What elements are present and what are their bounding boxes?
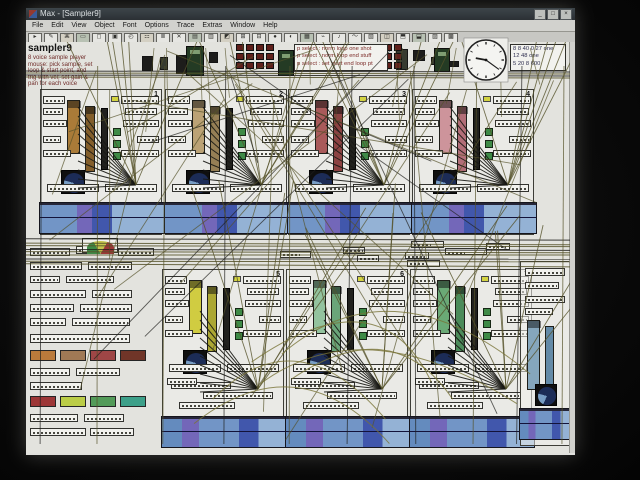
menu-object[interactable]: Object <box>94 20 114 31</box>
number-box[interactable] <box>525 282 559 289</box>
comment-line: 8 voice sample player <box>28 55 138 62</box>
number-box[interactable] <box>43 108 63 115</box>
preset-color-box[interactable] <box>60 350 86 361</box>
status-led <box>233 276 241 282</box>
toggle[interactable] <box>113 128 121 136</box>
slider-cap <box>458 107 468 114</box>
status-led <box>483 96 491 102</box>
pitch-slider[interactable] <box>457 106 467 172</box>
toggle[interactable] <box>485 128 493 136</box>
number-box[interactable] <box>203 392 273 399</box>
preset-color-box[interactable] <box>30 396 56 407</box>
number-box[interactable] <box>250 108 282 115</box>
number-box[interactable] <box>371 288 403 295</box>
pitch-slider[interactable] <box>333 106 343 172</box>
gain-slider[interactable] <box>67 100 80 154</box>
number-box[interactable] <box>289 330 317 337</box>
waveform-top-edge <box>288 203 412 205</box>
number-box[interactable] <box>369 96 407 104</box>
comment-line: loop & start point, and <box>28 68 138 75</box>
range-slider[interactable] <box>473 108 480 170</box>
toggle[interactable] <box>113 152 121 160</box>
number-box[interactable] <box>43 150 71 157</box>
object-box[interactable] <box>30 318 66 326</box>
number-box[interactable] <box>289 316 307 323</box>
number-box[interactable] <box>289 300 313 307</box>
object-box[interactable] <box>280 251 310 258</box>
number-box[interactable] <box>383 316 405 323</box>
slider-cap <box>208 287 218 294</box>
waveform-top-edge <box>165 203 289 205</box>
number-box[interactable] <box>47 184 99 192</box>
slider-cap <box>211 107 221 114</box>
slider-cap <box>456 287 466 294</box>
message-line[interactable]: 8 8 40 0 27 one <box>513 46 563 53</box>
header-object[interactable] <box>142 56 153 70</box>
object-box[interactable] <box>92 290 132 298</box>
voice-module: 4 <box>412 89 534 235</box>
number-box[interactable] <box>415 96 437 104</box>
window-titlebar[interactable]: Max - [Sampler9] _ □ × <box>26 8 575 20</box>
number-box[interactable] <box>525 308 553 315</box>
number-box[interactable] <box>230 184 282 192</box>
number-box[interactable] <box>295 184 347 192</box>
object-box[interactable] <box>30 368 70 376</box>
toggle[interactable] <box>485 140 493 148</box>
gain-slider[interactable] <box>437 280 450 334</box>
level-meter <box>82 238 118 253</box>
voice-module: 3 <box>288 89 410 235</box>
preset-button[interactable] <box>394 44 402 51</box>
status-led <box>357 276 365 282</box>
object-box[interactable] <box>30 382 82 390</box>
message-line[interactable]: p select : norm loop one shot <box>297 46 385 53</box>
slider-cap <box>316 101 329 108</box>
number-box[interactable] <box>105 184 157 192</box>
number-box[interactable] <box>415 150 443 157</box>
preset-button[interactable] <box>246 53 254 60</box>
voice-module: 7 <box>410 269 532 446</box>
voice-module <box>520 261 570 446</box>
number-box[interactable] <box>165 316 183 323</box>
range-slider[interactable] <box>347 288 354 350</box>
number-box[interactable] <box>43 120 67 127</box>
preset-button[interactable] <box>236 44 244 51</box>
message-line[interactable]: 12 48 one <box>513 53 563 60</box>
toggle[interactable] <box>361 128 369 136</box>
gain-slider[interactable] <box>313 280 326 334</box>
bpatcher-object[interactable] <box>434 48 450 72</box>
number-box[interactable] <box>262 136 284 143</box>
slider-cap <box>332 287 342 294</box>
number-box[interactable] <box>415 136 433 143</box>
range-slider[interactable] <box>471 288 478 350</box>
object-box[interactable] <box>88 262 132 270</box>
gain-slider[interactable] <box>192 100 205 154</box>
slider-cap <box>190 281 203 288</box>
toggle[interactable] <box>235 308 243 316</box>
number-box[interactable] <box>419 184 471 192</box>
number-box[interactable] <box>413 288 433 295</box>
waveform-top-edge <box>162 417 286 419</box>
indicator <box>282 54 290 58</box>
pitch-slider[interactable] <box>210 106 220 172</box>
preset-button[interactable] <box>266 53 274 60</box>
object-box[interactable] <box>30 248 70 256</box>
number-box[interactable] <box>168 96 190 104</box>
comment-line: mouse: pick sample, set <box>28 62 138 69</box>
number-box[interactable] <box>247 288 279 295</box>
number-box[interactable] <box>43 136 61 143</box>
slider-cap <box>86 107 96 114</box>
waveform-centerline <box>40 217 164 218</box>
object-box[interactable] <box>486 243 510 250</box>
toggle[interactable] <box>483 332 491 340</box>
number-box[interactable] <box>525 268 565 276</box>
number-box[interactable] <box>291 108 311 115</box>
slider-cap <box>528 321 541 328</box>
number-box[interactable] <box>125 108 157 115</box>
gain-slider[interactable] <box>527 320 540 390</box>
status-led <box>236 96 244 102</box>
number-box[interactable] <box>385 136 407 143</box>
header-object[interactable] <box>413 50 425 61</box>
header-object[interactable] <box>449 61 459 66</box>
number-box[interactable] <box>246 96 284 104</box>
patch-title: sampler9 <box>28 43 98 54</box>
pitch-slider[interactable] <box>455 286 465 352</box>
menu-file[interactable]: File <box>32 20 43 31</box>
number-box[interactable] <box>168 108 188 115</box>
preset-button[interactable] <box>256 44 264 51</box>
message-box-group[interactable]: 8 8 40 0 27 one12 48 one5 20 8 600 <box>510 44 566 71</box>
number-box[interactable] <box>165 330 193 337</box>
toggle[interactable] <box>485 152 493 160</box>
object-box[interactable] <box>80 304 132 312</box>
waveform-centerline <box>165 217 289 218</box>
waveform-display[interactable] <box>161 416 287 448</box>
waveform-centerline <box>410 431 534 432</box>
range-slider[interactable] <box>226 108 233 170</box>
menu-extras[interactable]: Extras <box>202 20 222 31</box>
number-box[interactable] <box>168 120 192 127</box>
slider-cap <box>440 101 453 108</box>
menu-font[interactable]: Font <box>123 20 137 31</box>
number-box[interactable] <box>415 378 445 385</box>
number-box[interactable] <box>248 120 284 127</box>
max-window: Max - [Sampler9] _ □ × FileEditViewObjec… <box>26 8 575 455</box>
waveform-top-edge <box>412 203 536 205</box>
menu-view[interactable]: View <box>71 20 86 31</box>
number-box[interactable] <box>293 364 345 372</box>
number-box[interactable] <box>373 108 405 115</box>
toggle[interactable] <box>359 308 367 316</box>
object-box[interactable] <box>343 247 364 254</box>
waveform-top-edge <box>40 203 164 205</box>
number-box[interactable] <box>291 136 309 143</box>
number-box[interactable] <box>351 364 403 372</box>
message-box-group[interactable]: p select : norm loop one shotp select : … <box>294 44 388 71</box>
slider-cap <box>334 107 344 114</box>
vertical-scrollbar[interactable] <box>569 42 575 453</box>
number-box[interactable] <box>243 330 281 337</box>
window-title: Max - [Sampler9] <box>40 8 101 20</box>
patch-comment: 8 voice sample playermouse: pick sample,… <box>28 55 138 91</box>
number-box[interactable] <box>413 330 441 337</box>
waveform-centerline <box>288 217 412 218</box>
number-box[interactable] <box>493 150 531 157</box>
waveform-display[interactable] <box>411 202 537 234</box>
comment-line: pan for each voice <box>28 81 138 88</box>
menu-options[interactable]: Options <box>145 20 169 31</box>
preset-button[interactable] <box>266 62 274 69</box>
preset-color-box[interactable] <box>90 396 116 407</box>
pitch-slider[interactable] <box>545 326 554 386</box>
object-box[interactable] <box>90 428 134 436</box>
waveform-display[interactable] <box>39 202 165 234</box>
voice-module: 5 <box>162 269 284 446</box>
voice-module: 1 <box>40 89 162 235</box>
number-box[interactable] <box>43 96 65 104</box>
number-box[interactable] <box>227 364 279 372</box>
object-box[interactable] <box>405 252 429 259</box>
number-box[interactable] <box>121 150 159 157</box>
number-box[interactable] <box>246 150 284 157</box>
close-button[interactable]: × <box>560 9 572 20</box>
number-box[interactable] <box>123 120 159 127</box>
number-box[interactable] <box>169 364 221 372</box>
number-box[interactable] <box>413 300 437 307</box>
object-box[interactable] <box>30 304 74 312</box>
slider-cap <box>438 281 451 288</box>
header-object[interactable] <box>209 52 219 63</box>
gain-slider[interactable] <box>189 280 202 334</box>
app-icon <box>29 10 37 18</box>
waveform-display[interactable] <box>285 416 411 448</box>
number-box[interactable] <box>291 378 321 385</box>
number-box[interactable] <box>245 300 281 307</box>
preset-button[interactable] <box>246 62 254 69</box>
status-led <box>111 96 119 102</box>
number-box[interactable] <box>168 136 186 143</box>
toggle[interactable] <box>359 332 367 340</box>
waveform-display[interactable] <box>164 202 290 234</box>
object-box[interactable] <box>407 260 440 267</box>
toggle[interactable] <box>238 152 246 160</box>
message-line[interactable]: p select : set start end loop pt <box>297 61 385 68</box>
waveform-centerline <box>520 423 570 424</box>
number-box[interactable] <box>291 96 313 104</box>
menu-window[interactable]: Window <box>230 20 255 31</box>
number-box[interactable] <box>367 330 405 337</box>
waveform-centerline <box>286 431 410 432</box>
slider-cap <box>68 101 81 108</box>
number-box[interactable] <box>477 184 529 192</box>
number-box[interactable] <box>415 120 439 127</box>
status-led <box>481 276 489 282</box>
object-box[interactable] <box>30 290 86 298</box>
menu-help[interactable]: Help <box>263 20 277 31</box>
number-box[interactable] <box>497 108 529 115</box>
number-box[interactable] <box>165 276 187 284</box>
number-box[interactable] <box>168 150 196 157</box>
slider-cap <box>193 101 206 108</box>
number-box[interactable] <box>303 402 359 409</box>
object-box[interactable] <box>411 241 444 248</box>
number-box[interactable] <box>367 276 405 284</box>
number-box[interactable] <box>413 276 435 284</box>
waveform-centerline <box>412 217 536 218</box>
number-box[interactable] <box>369 150 407 157</box>
number-box[interactable] <box>289 288 309 295</box>
preset-button[interactable] <box>394 53 402 60</box>
waveform-centerline <box>162 431 286 432</box>
number-box[interactable] <box>172 184 224 192</box>
toggle[interactable] <box>238 128 246 136</box>
number-box[interactable] <box>259 316 281 323</box>
menu-edit[interactable]: Edit <box>51 20 63 31</box>
number-box[interactable] <box>369 300 405 307</box>
gain-slider[interactable] <box>315 100 328 154</box>
indicator <box>190 50 200 54</box>
object-box[interactable] <box>30 428 86 436</box>
number-box[interactable] <box>525 296 565 303</box>
toggle[interactable] <box>361 152 369 160</box>
dial-face <box>538 387 556 405</box>
indicator <box>438 52 446 56</box>
number-box[interactable] <box>451 392 521 399</box>
waveform-display[interactable] <box>519 408 570 440</box>
menu-bar: FileEditViewObjectFontOptionsTraceExtras… <box>26 20 575 32</box>
preset-button[interactable] <box>256 62 264 69</box>
minimize-button[interactable]: _ <box>534 9 546 20</box>
number-box[interactable] <box>165 288 185 295</box>
waveform-display[interactable] <box>287 202 413 234</box>
object-box[interactable] <box>30 414 78 422</box>
bpatcher-object[interactable] <box>186 46 204 76</box>
number-box[interactable] <box>121 96 159 104</box>
range-slider[interactable] <box>349 108 356 170</box>
preset-button[interactable] <box>256 53 264 60</box>
projected-photo: Max - [Sampler9] _ □ × FileEditViewObjec… <box>0 0 640 480</box>
number-box[interactable] <box>137 136 159 143</box>
preset-color-box[interactable] <box>120 396 146 407</box>
preset-button[interactable] <box>236 62 244 69</box>
number-box[interactable] <box>371 120 407 127</box>
voice-module: 6 <box>286 269 408 446</box>
object-box[interactable] <box>30 334 130 343</box>
number-box[interactable] <box>327 392 397 399</box>
object-box[interactable] <box>84 414 124 422</box>
number-box[interactable] <box>495 120 531 127</box>
toggle[interactable] <box>359 320 367 328</box>
number-box[interactable] <box>353 184 405 192</box>
object-box[interactable] <box>445 248 488 255</box>
number-box[interactable] <box>179 402 235 409</box>
number-box[interactable] <box>493 96 531 104</box>
preset-button[interactable] <box>236 53 244 60</box>
preset-button[interactable] <box>246 44 254 51</box>
waveform-display[interactable] <box>409 416 535 448</box>
toggle[interactable] <box>235 320 243 328</box>
number-box[interactable] <box>289 276 311 284</box>
number-box[interactable] <box>165 300 189 307</box>
meter-arc <box>87 241 114 254</box>
object-box[interactable] <box>66 276 114 283</box>
slider-cap <box>314 281 327 288</box>
pitch-slider[interactable] <box>207 286 217 352</box>
voice-module: 2 <box>165 89 287 235</box>
waveform-top-edge <box>286 417 410 419</box>
toggle[interactable] <box>361 140 369 148</box>
preset-color-box[interactable] <box>60 396 86 407</box>
number-box[interactable] <box>243 276 281 284</box>
number-box[interactable] <box>509 136 531 143</box>
number-box[interactable] <box>417 364 469 372</box>
number-box[interactable] <box>291 120 315 127</box>
toggle[interactable] <box>113 140 121 148</box>
menu-trace[interactable]: Trace <box>177 20 195 31</box>
pan-dial[interactable] <box>535 384 557 406</box>
waveform-top-edge <box>410 417 534 419</box>
object-box[interactable] <box>76 368 120 376</box>
preset-color-box[interactable] <box>30 350 56 361</box>
number-box[interactable] <box>415 108 435 115</box>
object-box[interactable] <box>118 248 154 256</box>
header-object[interactable] <box>160 57 168 70</box>
status-led <box>359 96 367 102</box>
range-slider[interactable] <box>223 288 230 350</box>
patch-canvas[interactable]: sampler98 voice sample playermouse: pick… <box>26 42 570 453</box>
number-box[interactable] <box>167 378 197 385</box>
toggle[interactable] <box>483 320 491 328</box>
preset-color-box[interactable] <box>120 350 146 361</box>
waveform-top-edge <box>520 409 570 411</box>
object-box[interactable] <box>30 262 82 270</box>
toggle[interactable] <box>483 308 491 316</box>
maximize-button[interactable]: □ <box>547 9 559 20</box>
clock-widget[interactable] <box>463 37 509 83</box>
gain-slider[interactable] <box>439 100 452 154</box>
object-box[interactable] <box>72 318 130 326</box>
bpatcher-object[interactable] <box>278 50 294 76</box>
toggle[interactable] <box>235 332 243 340</box>
message-line[interactable]: 5 20 8 600 <box>513 61 563 68</box>
range-slider[interactable] <box>101 108 108 170</box>
number-box[interactable] <box>413 316 431 323</box>
pitch-slider[interactable] <box>85 106 95 172</box>
preset-color-box[interactable] <box>90 350 116 361</box>
pitch-slider[interactable] <box>331 286 341 352</box>
object-box[interactable] <box>30 276 60 283</box>
preset-button[interactable] <box>394 62 402 69</box>
comment-line: trig with vel; set gain & <box>28 75 138 82</box>
toggle[interactable] <box>238 140 246 148</box>
number-box[interactable] <box>427 402 483 409</box>
preset-button[interactable] <box>266 44 274 51</box>
number-box[interactable] <box>291 150 319 157</box>
message-line[interactable]: p select : norm loop end stuff <box>297 53 385 60</box>
object-box[interactable] <box>357 255 380 262</box>
